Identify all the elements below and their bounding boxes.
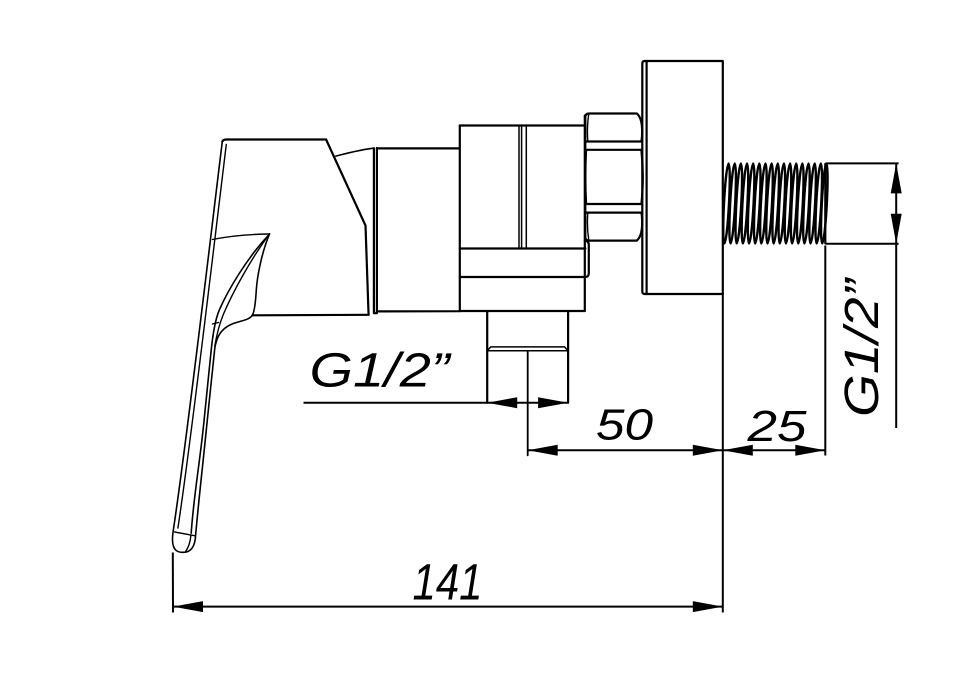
svg-text:50: 50 <box>596 401 654 450</box>
svg-text:G1/2”: G1/2” <box>836 277 889 417</box>
svg-text:G1/2”: G1/2” <box>310 345 452 398</box>
svg-text:25: 25 <box>746 402 807 451</box>
svg-text:141: 141 <box>413 554 483 611</box>
